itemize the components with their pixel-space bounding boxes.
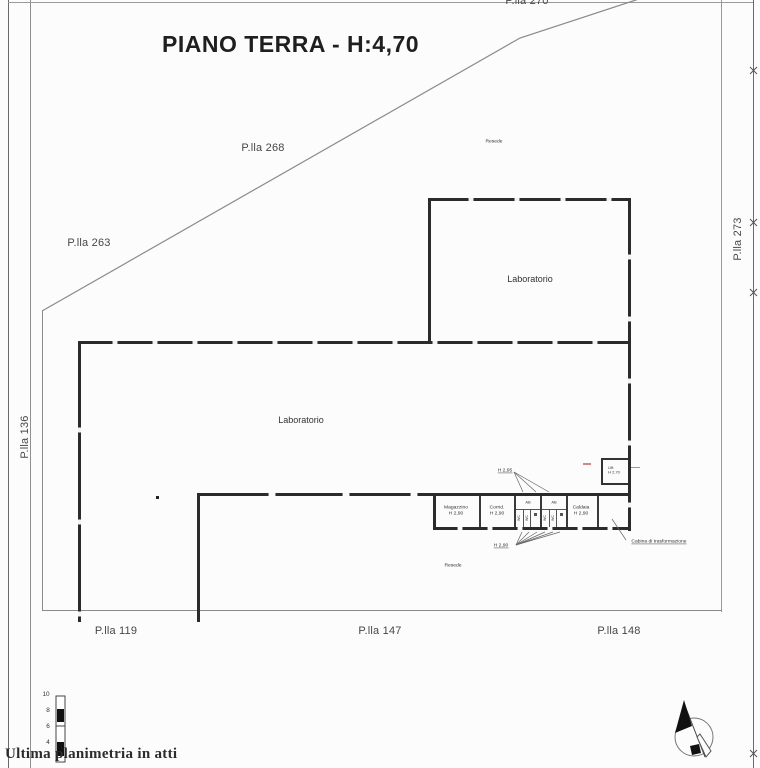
leader-lines-wc <box>516 532 560 545</box>
resede-label-top: Resede <box>485 138 502 144</box>
room-name: Magazzino <box>444 504 468 510</box>
parcel-label-147: P.lla 147 <box>358 625 401 637</box>
annotation-text: H 2,95 <box>498 467 513 473</box>
drawing-overlay <box>0 0 760 768</box>
annotation-height-antibagno: H 2,95 <box>498 467 513 473</box>
annotation-text: Cabina di trasformazione <box>631 538 686 544</box>
parcel-boundary-diagonal <box>42 0 642 311</box>
parcel-label-119: P.lla 119 <box>95 625 137 637</box>
leader-line-cabina <box>612 519 626 540</box>
parcel-label-268: P.lla 268 <box>241 142 284 154</box>
annotation-height-wc: H 2,90 <box>494 542 509 548</box>
parcel-label-263: P.lla 263 <box>67 237 110 249</box>
room-height: H 2,90 <box>490 510 505 516</box>
boundary-cross-marks <box>750 67 757 757</box>
room-label-laboratorio-upper: Laboratorio <box>507 274 553 284</box>
annotation-cabina: Cabina di trasformazione <box>631 538 686 544</box>
north-compass <box>675 700 713 757</box>
parcel-label-273: P.lla 273 <box>732 217 744 260</box>
room-label-magazzino: Magazzino H 2,90 <box>444 504 468 516</box>
room-label-ab2: AB <box>551 500 556 505</box>
room-label-laboratorio-main: Laboratorio <box>278 415 324 425</box>
room-label-wc: WC <box>551 515 555 521</box>
room-height: H 2,70 <box>608 470 620 475</box>
room-label-ab1: AB <box>525 500 530 505</box>
scale-tick-4: 4 <box>46 738 50 745</box>
leader-lines-antibagno <box>514 472 549 492</box>
floor-plan-canvas: PIANO TERRA - H:4,70 <box>0 0 760 768</box>
room-height: H 2,90 <box>573 510 590 516</box>
parcel-label-270: P.lla 270 <box>505 0 548 7</box>
room-label-wc: WC <box>517 515 521 521</box>
parcel-label-136: P.lla 136 <box>19 415 31 458</box>
room-label-corridoio: Corrid. H 2,90 <box>490 504 505 516</box>
scale-tick-8: 8 <box>46 706 50 713</box>
parcel-label-148: P.lla 148 <box>597 625 640 637</box>
room-name: Corrid. <box>490 504 505 510</box>
room-label-caldaia: Caldaia H 2,90 <box>573 504 590 516</box>
room-name: Caldaia <box>573 504 590 510</box>
resede-label-bottom: Resede <box>444 562 461 568</box>
footer-note: Ultima planimetria in atti <box>5 746 177 763</box>
annotation-text: H 2,90 <box>494 542 509 548</box>
scale-tick-10: 10 <box>42 690 49 697</box>
scale-tick-6: 6 <box>46 722 50 729</box>
room-label-ufficio: Uff. H 2,70 <box>608 466 620 475</box>
room-label-wc: WC <box>543 515 547 521</box>
room-height: H 2,90 <box>444 510 468 516</box>
room-label-wc: WC <box>525 515 529 521</box>
